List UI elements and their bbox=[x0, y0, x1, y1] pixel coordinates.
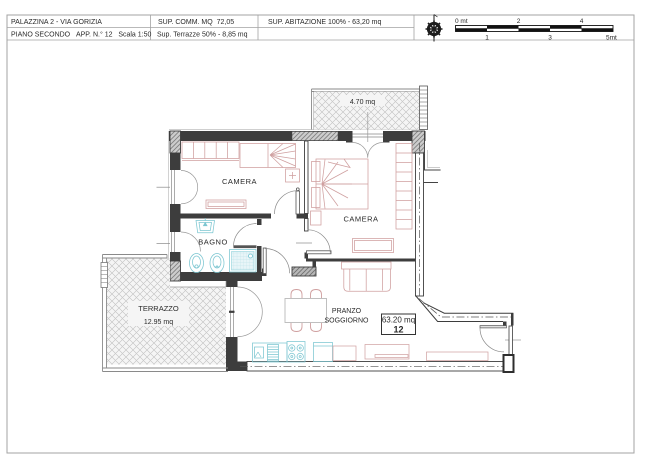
svg-text:5mt: 5mt bbox=[606, 35, 617, 42]
svg-text:PIANO SECONDO APP. N.° 12: PIANO SECONDO APP. N.° 12 Scala 1:50 bbox=[11, 31, 152, 39]
svg-text:12: 12 bbox=[393, 325, 403, 335]
svg-text:63.20 mq: 63.20 mq bbox=[382, 316, 415, 325]
svg-text:12.95 mq: 12.95 mq bbox=[144, 319, 173, 326]
svg-text:PALAZZINA 2 - VIA GORIZIA: PALAZZINA 2 - VIA GORIZIA bbox=[11, 19, 102, 26]
svg-text:2: 2 bbox=[517, 18, 521, 25]
svg-text:CAMERA: CAMERA bbox=[343, 215, 378, 224]
svg-text:0 mt: 0 mt bbox=[455, 18, 468, 25]
svg-text:SOGGIORNO: SOGGIORNO bbox=[325, 318, 370, 325]
svg-text:1: 1 bbox=[485, 35, 489, 42]
svg-text:3: 3 bbox=[548, 35, 552, 42]
svg-text:4: 4 bbox=[580, 18, 584, 25]
svg-text:Sup. Terrazze 50% - 8,85 mq: Sup. Terrazze 50% - 8,85 mq bbox=[157, 32, 248, 39]
svg-text:CAMERA: CAMERA bbox=[222, 177, 257, 186]
svg-text:SUP. COMM. MQ 72,05: SUP. COMM. MQ 72,05 bbox=[158, 19, 234, 26]
svg-text:4.70 mq: 4.70 mq bbox=[350, 99, 375, 106]
svg-text:SUP. ABITAZIONE 100% - 63,20 m: SUP. ABITAZIONE 100% - 63,20 mq bbox=[268, 19, 381, 26]
svg-text:PRANZO: PRANZO bbox=[332, 308, 362, 315]
svg-text:BAGNO: BAGNO bbox=[198, 238, 228, 247]
svg-text:TERRAZZO: TERRAZZO bbox=[138, 304, 179, 313]
